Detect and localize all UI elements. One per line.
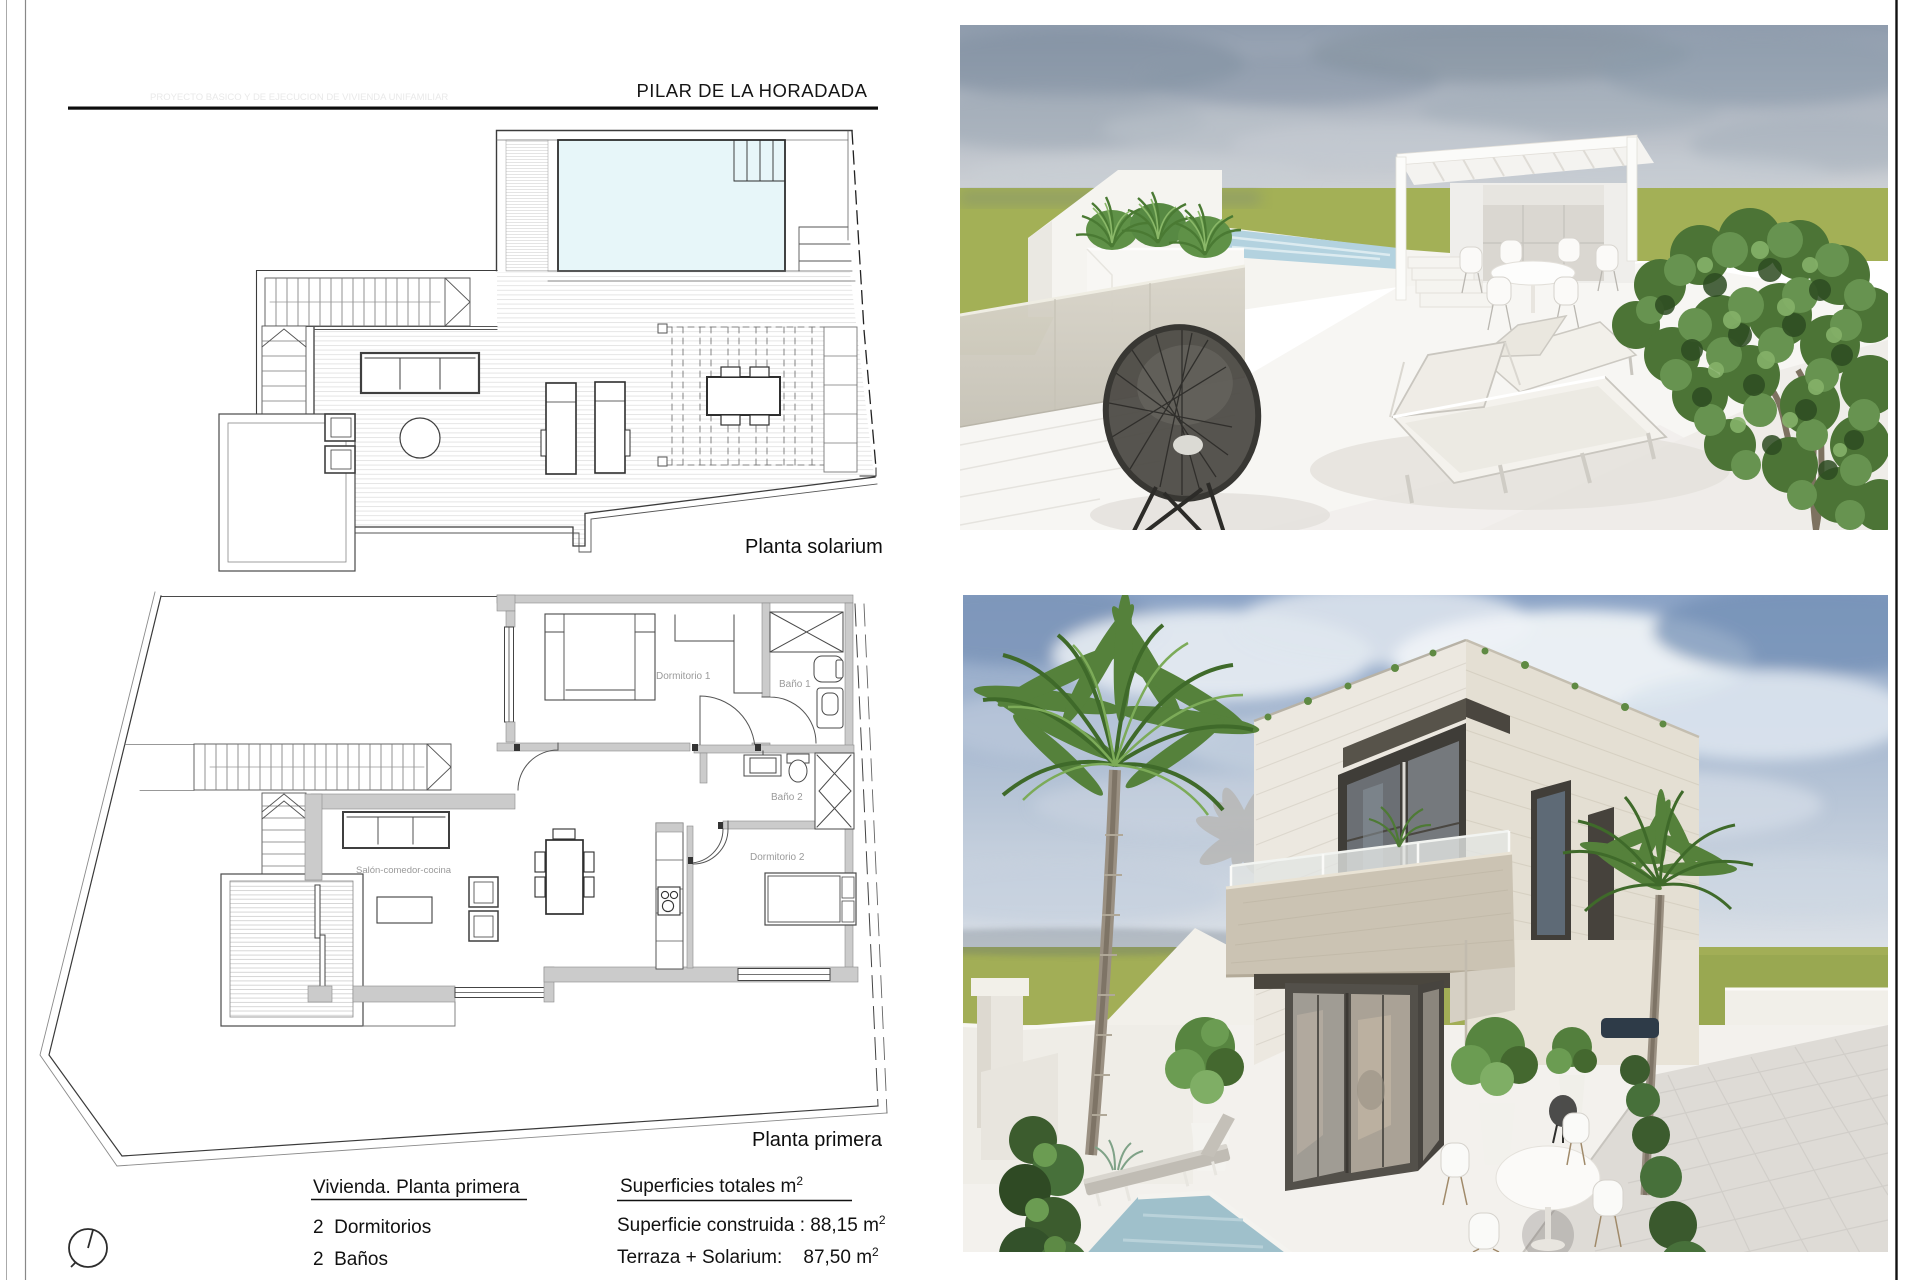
svg-text:Vivienda. Planta primera: Vivienda. Planta primera xyxy=(313,1177,520,1198)
svg-text:Planta primera: Planta primera xyxy=(752,1129,883,1151)
svg-text:PROYECTO BASICO Y DE EJECUCION: PROYECTO BASICO Y DE EJECUCION DE VIVIEN… xyxy=(150,92,448,103)
svg-text:Superficie construida : 88,15: Superficie construida : 88,15 m2 xyxy=(617,1213,886,1236)
svg-text:PILAR DE LA HORADADA: PILAR DE LA HORADADA xyxy=(636,80,867,101)
svg-text:Planta solarium: Planta solarium xyxy=(745,536,883,558)
svg-text:Baño 1: Baño 1 xyxy=(779,679,811,690)
svg-text:Salón-comedor-cocina: Salón-comedor-cocina xyxy=(356,865,452,876)
svg-text:Dormitorio 1: Dormitorio 1 xyxy=(656,671,711,682)
svg-text:Superficies totales m2: Superficies totales m2 xyxy=(620,1174,803,1197)
svg-text:2 Dormitorios: 2 Dormitorios xyxy=(313,1217,431,1238)
svg-text:Baño 2: Baño 2 xyxy=(771,792,803,803)
svg-text:Terraza + Solarium: 87,50 m: Terraza + Solarium: 87,50 m2 xyxy=(617,1245,879,1268)
svg-text:2 Baños: 2 Baños xyxy=(313,1249,388,1270)
svg-text:Dormitorio 2: Dormitorio 2 xyxy=(750,852,805,863)
